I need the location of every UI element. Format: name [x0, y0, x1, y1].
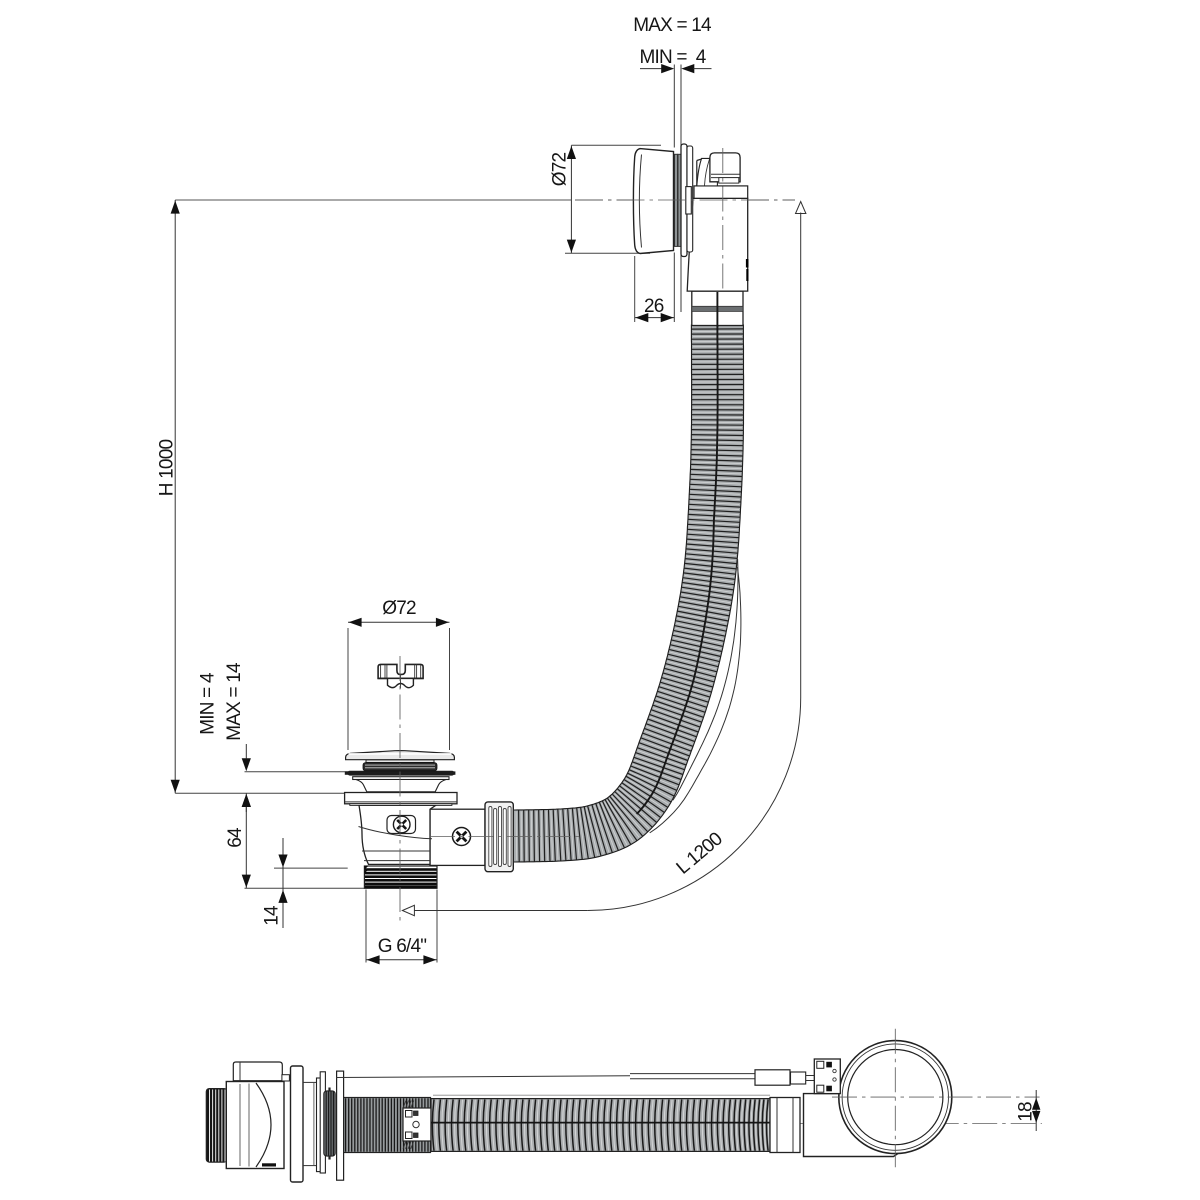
- svg-text:64: 64: [225, 827, 246, 848]
- svg-text:MAX = 14: MAX = 14: [633, 15, 712, 36]
- svg-text:14: 14: [261, 905, 282, 926]
- svg-text:MIN = 4: MIN = 4: [198, 672, 219, 735]
- svg-text:Ø72: Ø72: [382, 598, 416, 619]
- svg-text:G 6/4": G 6/4": [378, 936, 426, 957]
- svg-text:MAX = 14: MAX = 14: [224, 662, 245, 741]
- svg-text:MIN = 4: MIN = 4: [640, 47, 707, 68]
- svg-text:H 1000: H 1000: [157, 440, 178, 497]
